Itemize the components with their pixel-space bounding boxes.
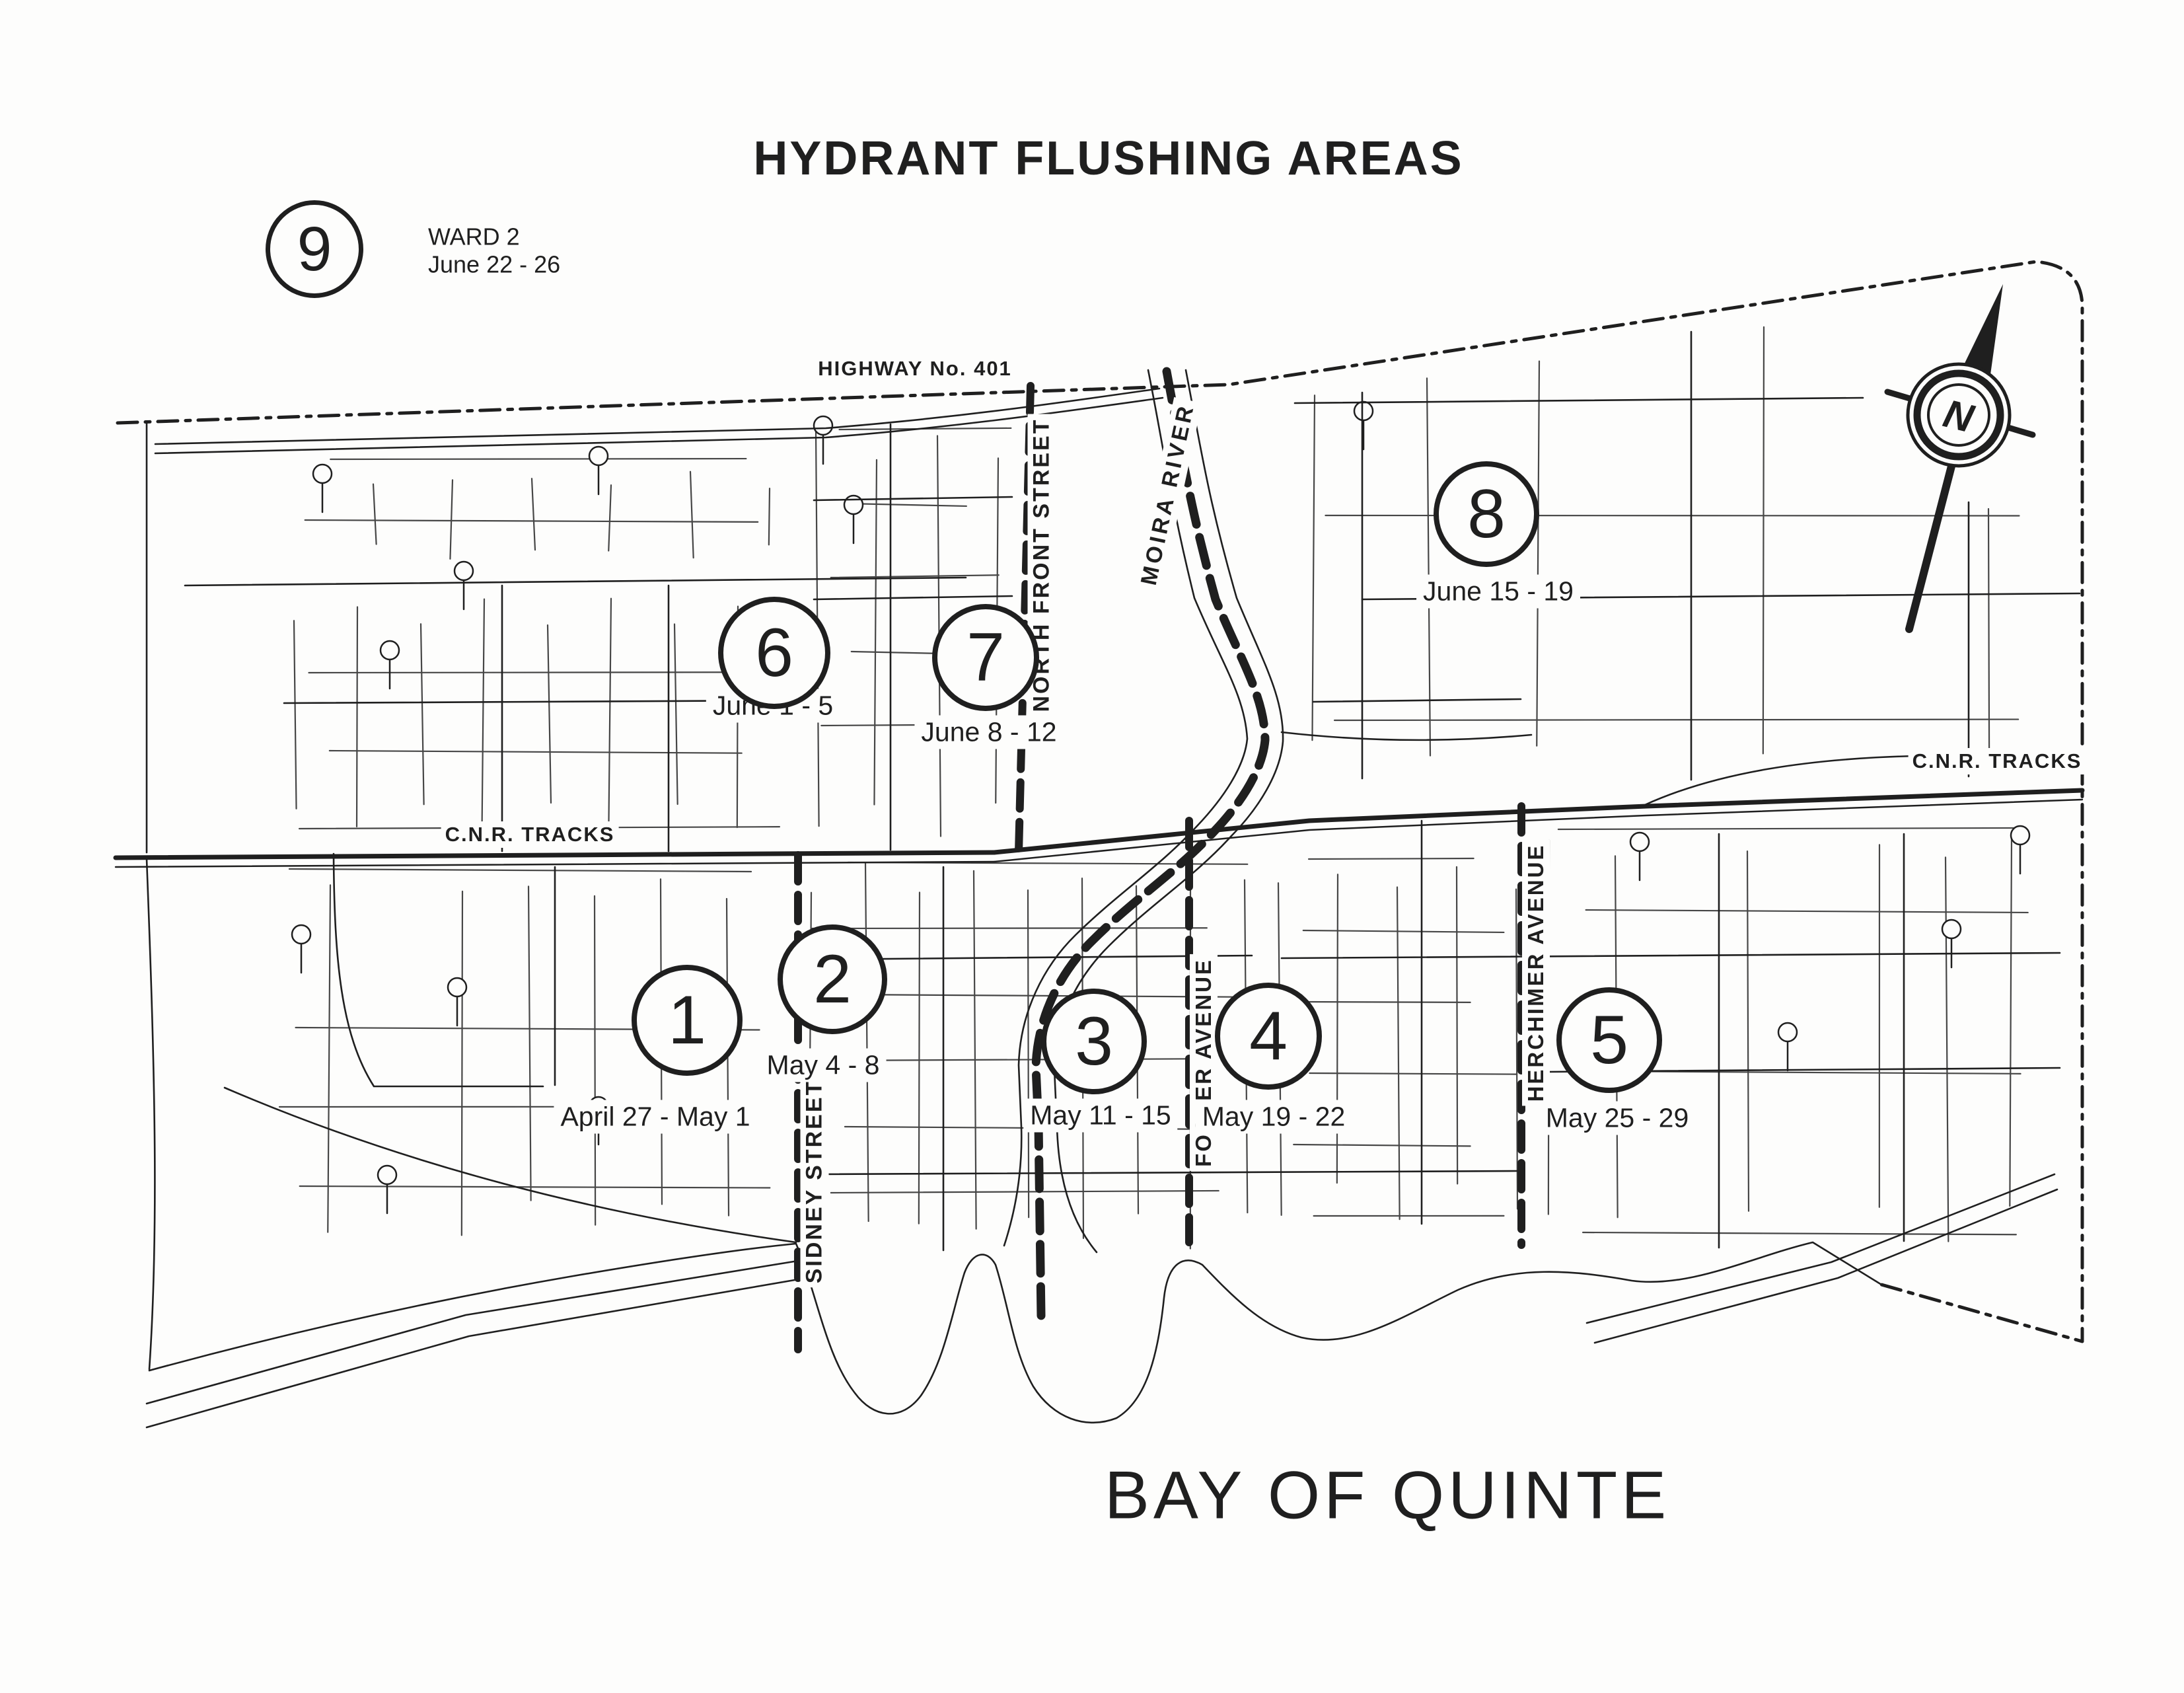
- zone-1-marker: 1: [632, 965, 743, 1076]
- hydrant-flushing-map-page: HYDRANT FLUSHING AREAS 9 WARD 2 June 22 …: [0, 0, 2184, 1693]
- foster-avenue-label: FOSTER AVENUE: [1190, 954, 1218, 1171]
- zone-4-dates: May 19 - 22: [1196, 1100, 1352, 1134]
- zone-2-dates: May 4 - 8: [760, 1049, 887, 1082]
- sidney-street-label: SIDNEY STREET: [801, 1076, 829, 1288]
- cnr-tracks-west-label: C.N.R. TRACKS: [441, 821, 619, 848]
- zone-8-marker: 8: [1434, 461, 1539, 567]
- zone-7-number: 7: [966, 623, 1005, 692]
- zone-1-dates: April 27 - May 1: [554, 1100, 756, 1134]
- zone-1-number: 1: [668, 986, 706, 1055]
- zone-4-marker: 4: [1215, 983, 1322, 1090]
- highway-401-label: HIGHWAY No. 401: [814, 356, 1016, 382]
- zone-6-marker: 6: [718, 597, 830, 709]
- cnr-tracks-east-label: C.N.R. TRACKS: [1909, 748, 2086, 774]
- zone-5-dates: May 25 - 29: [1539, 1102, 1696, 1135]
- zone-5-marker: 5: [1556, 987, 1662, 1093]
- zone-5-number: 5: [1590, 1006, 1628, 1074]
- zone-8-number: 8: [1467, 480, 1506, 548]
- moira-river-label: MOIRA RIVER: [1134, 397, 1202, 592]
- zone-7-marker: 7: [932, 604, 1039, 711]
- zone-2-number: 2: [813, 945, 852, 1014]
- zone-4-number: 4: [1249, 1002, 1288, 1071]
- label-overlay: 1April 27 - May 12May 4 - 83May 11 - 154…: [0, 0, 2184, 1693]
- zone-8-dates: June 15 - 19: [1416, 575, 1580, 609]
- zone-7-dates: June 8 - 12: [914, 716, 1063, 749]
- zone-3-marker: 3: [1041, 989, 1147, 1094]
- herchimer-avenue-label: HERCHIMER AVENUE: [1522, 840, 1550, 1106]
- zone-2-marker: 2: [778, 924, 887, 1034]
- zone-3-dates: May 11 - 15: [1023, 1099, 1177, 1133]
- zone-6-number: 6: [755, 619, 793, 687]
- zone-3-number: 3: [1075, 1007, 1113, 1076]
